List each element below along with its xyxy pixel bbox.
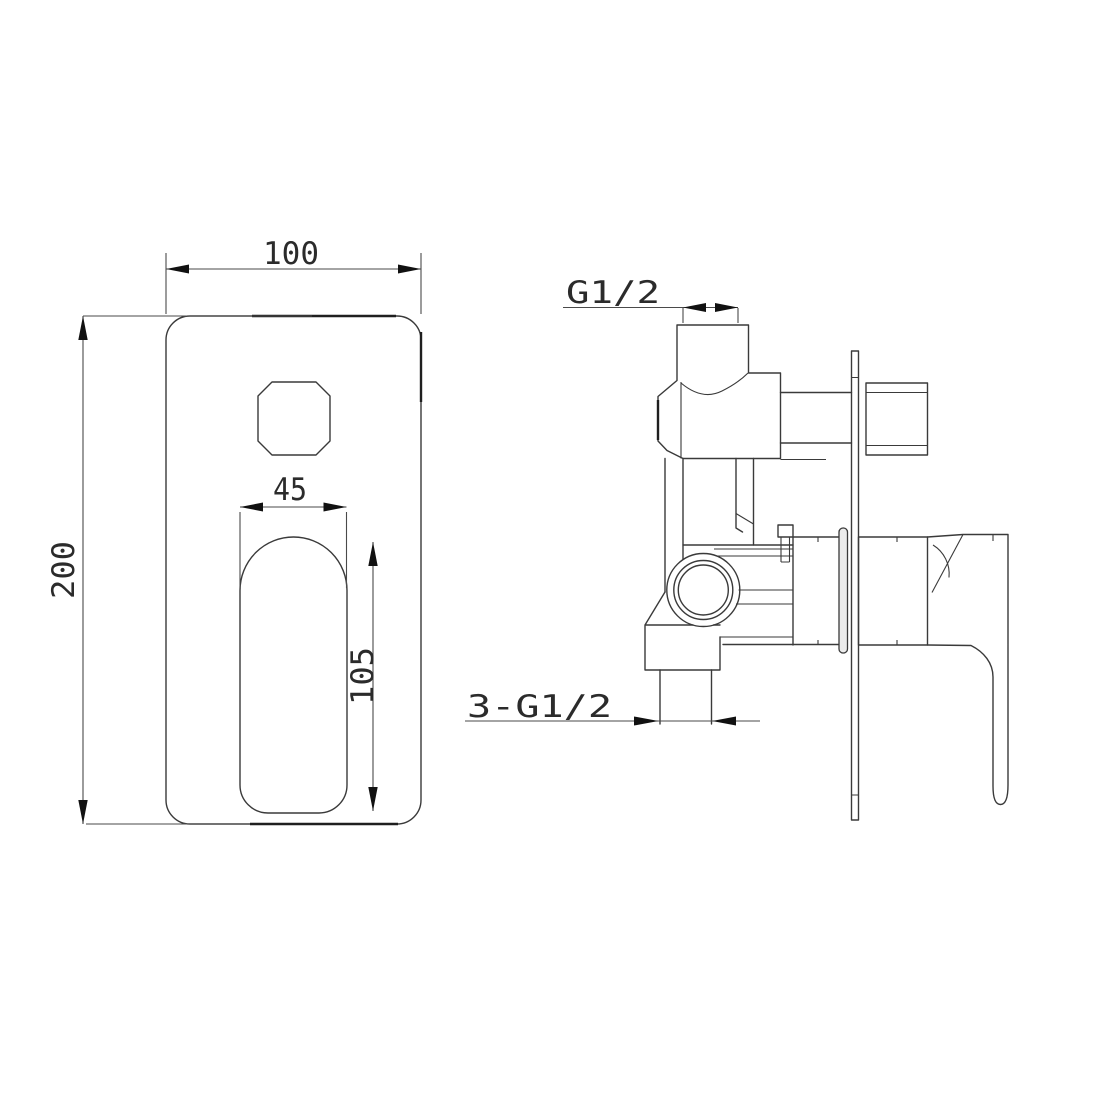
dim-slot-height-arrow-top (368, 542, 377, 566)
wall-plate-edge (852, 351, 859, 820)
callout-top-port: G1/2 (563, 275, 738, 323)
dim-slot-height: 105 (345, 542, 381, 811)
dim-slot-height-label: 105 (345, 647, 381, 705)
dim-slot-width: 45 (240, 472, 347, 588)
lever-slot (240, 537, 347, 813)
top-port-arrow-left (683, 303, 706, 312)
dim-height-arrow-top (78, 316, 87, 340)
side-port-mid-ring (674, 561, 733, 620)
top-port-ext-lines (683, 308, 738, 323)
stop-screw-cap (778, 525, 793, 537)
dim-slot-width-arrow-right (324, 503, 347, 512)
front-view: 100 200 45 105 (46, 236, 421, 824)
top-port-label: G1/2 (566, 275, 660, 311)
body-saddle-curve (681, 373, 748, 394)
bottom-ports-arrow-right (712, 717, 736, 726)
wall-plate-ticks (852, 378, 859, 796)
lever-handle-outline (928, 535, 1009, 805)
cartridge-sleeve (859, 537, 928, 645)
front-plate-outline (166, 316, 421, 824)
dim-height-label: 200 (46, 541, 82, 599)
dim-width-arrow-left (166, 265, 189, 274)
diverter-knob (866, 383, 928, 455)
dim-width-arrow-right (398, 265, 421, 274)
body-neck (736, 459, 754, 546)
dim-height-arrow-bottom (78, 800, 87, 824)
bottom-port (660, 670, 712, 724)
side-port-bore (678, 565, 728, 615)
dim-height: 200 (46, 316, 312, 824)
top-port-arrow-right (715, 303, 738, 312)
drawing-sheet: 100 200 45 105 (0, 0, 1100, 1100)
diverter-knob-chamfer-lines (866, 393, 928, 446)
body-neck-chamfer (736, 514, 754, 525)
dim-width-label: 100 (263, 236, 319, 272)
bottom-ports-arrow-left (634, 717, 659, 726)
bottom-ports-label: 3-G1/2 (467, 689, 612, 725)
dim-slot-width-label: 45 (273, 472, 307, 508)
outlet-pipe (781, 393, 852, 444)
dim-width: 100 (166, 236, 421, 314)
diverter-hole-octagon (258, 382, 330, 455)
side-view: G1/2 3-G1/2 (465, 275, 1008, 820)
handle-pivot-arc (933, 545, 949, 578)
escutcheon-flange (839, 528, 848, 653)
callout-bottom-ports: 3-G1/2 (465, 689, 760, 726)
dim-slot-height-arrow-bottom (368, 787, 377, 811)
technical-drawing-canvas: 100 200 45 105 (0, 0, 1100, 1100)
dim-slot-width-arrow-left (240, 503, 263, 512)
